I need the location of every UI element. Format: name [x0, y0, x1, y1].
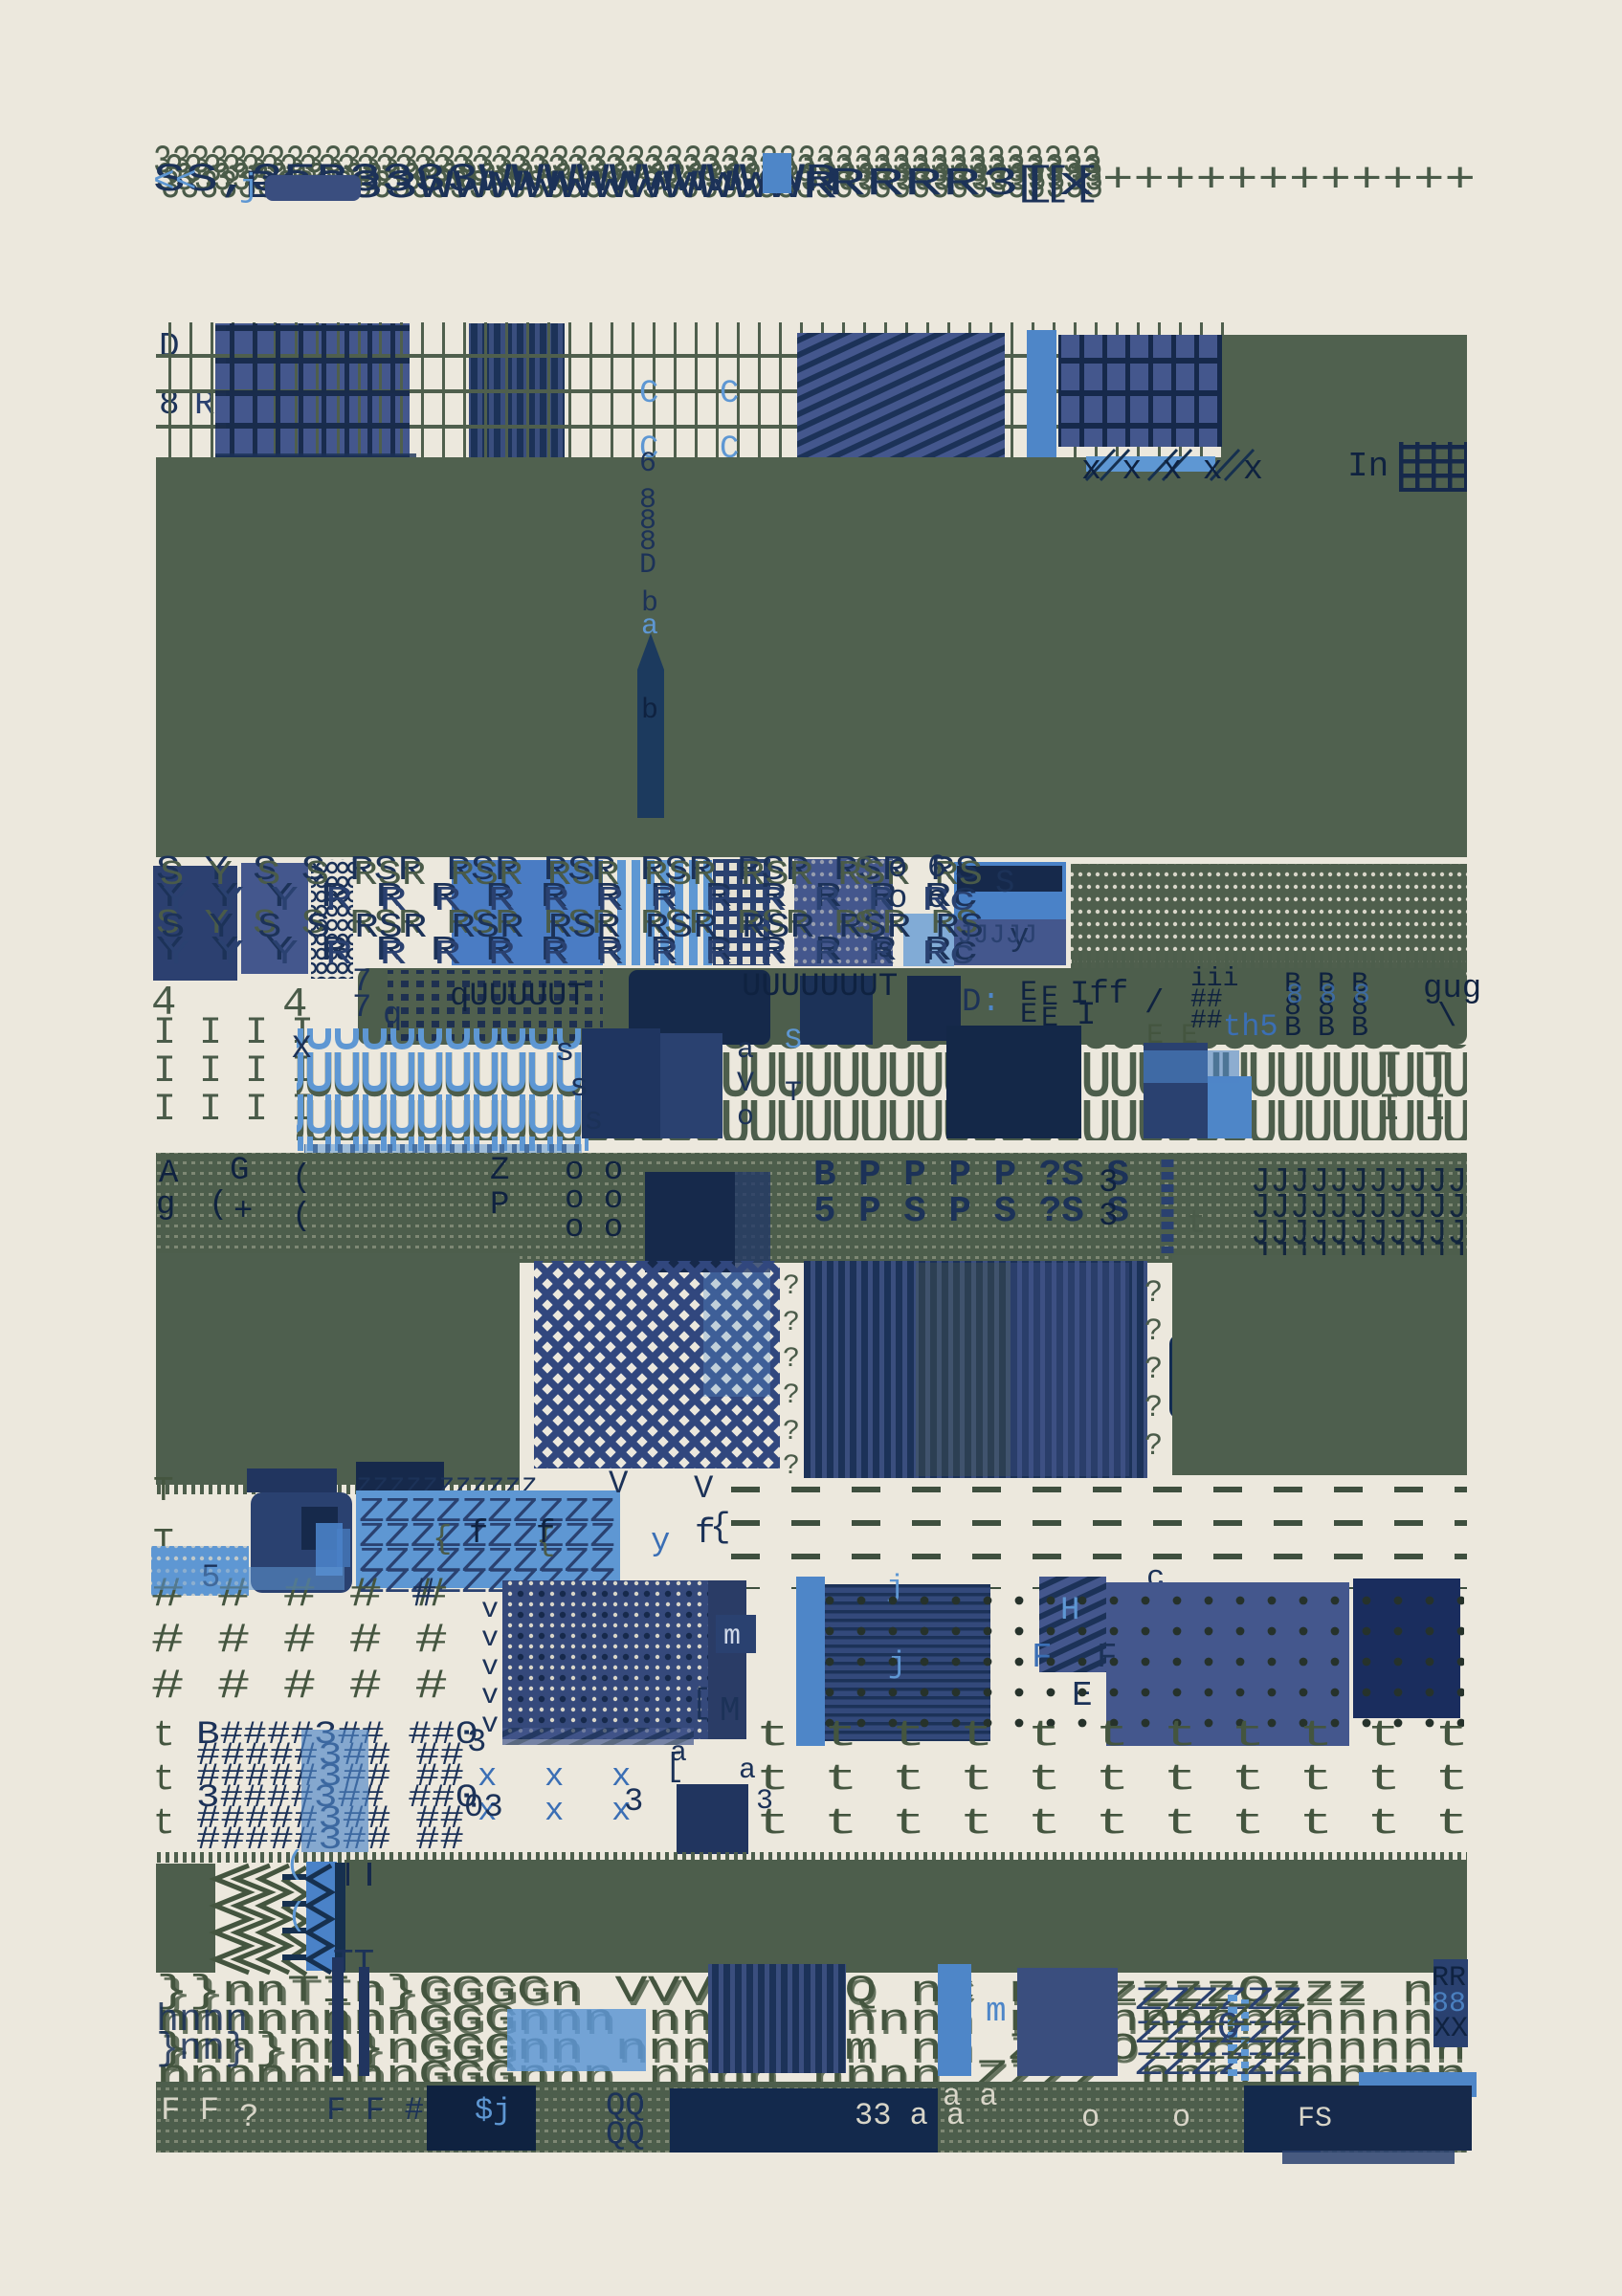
svg-text:y: y	[651, 1524, 670, 1560]
svg-text:I I: I I	[1378, 1089, 1447, 1132]
svg-text:3: 3	[1099, 1199, 1118, 1235]
svg-text:F F: F F	[161, 2093, 219, 2130]
svg-text:}nn}: }nn}	[156, 2028, 248, 2071]
svg-text:g: g	[156, 1187, 175, 1224]
svg-text:B P P P P ?S S: B P P P P ?S S	[813, 1155, 1129, 1196]
svg-text:I I I I: I I I I	[153, 1012, 314, 1055]
svg-text:ZZZZZZ: ZZZZZZ	[1144, 1999, 1307, 2036]
svg-text:th5: th5	[1223, 1009, 1278, 1045]
svg-text:?: ?	[1144, 1314, 1163, 1349]
svg-text:+: +	[233, 1194, 253, 1230]
svg-text:# # # # #: # # # # #	[151, 1663, 448, 1711]
svg-text:QQ: QQ	[606, 2117, 645, 2153]
svg-text:qUUUUUT: qUUUUUT	[450, 979, 587, 1015]
svg-text:?: ?	[1144, 1390, 1163, 1425]
svg-text:?: ?	[1144, 1428, 1163, 1464]
svg-text:5 P S P S ?S S: 5 P S P S ?S S	[813, 1191, 1129, 1232]
svg-text:a: a	[670, 1737, 687, 1770]
svg-text:{: {	[433, 1522, 452, 1558]
svg-text:v: v	[481, 1594, 499, 1626]
svg-text:6: 6	[639, 448, 656, 480]
svg-text:x x x x x: x x x x x	[1081, 450, 1263, 489]
svg-text:C: C	[639, 376, 658, 412]
svg-text:s: s	[555, 1034, 574, 1071]
svg-text:[: [	[691, 1684, 712, 1723]
svg-text:(: (	[292, 1160, 311, 1197]
svg-text:3: 3	[756, 1785, 773, 1818]
svg-text:x: x	[544, 1759, 564, 1796]
svg-text:o: o	[737, 1101, 754, 1134]
svg-text:FS: FS	[1298, 2103, 1332, 2135]
svg-text:j: j	[239, 170, 258, 207]
svg-text:G: G	[230, 1153, 249, 1189]
svg-text:I I I I: I I I I	[153, 1089, 314, 1132]
svg-text:?: ?	[783, 1380, 800, 1412]
svg-text:# # # # #: # # # # #	[151, 1617, 448, 1665]
svg-text:(: (	[292, 1199, 311, 1235]
svg-text:In: In	[1347, 447, 1389, 486]
svg-text:JJJJJ: JJJJJ	[957, 921, 1037, 951]
svg-text:S: S	[785, 1025, 802, 1057]
svg-text:I I I I: I I I I	[153, 1050, 314, 1093]
svg-text:8: 8	[1353, 980, 1370, 1012]
svg-text:/: /	[1144, 986, 1164, 1023]
svg-text:T: T	[785, 1077, 802, 1110]
svg-text:M: M	[720, 1691, 741, 1731]
svg-text:##: ##	[1190, 1006, 1223, 1036]
svg-text:?: ?	[783, 1307, 800, 1339]
svg-text:f: f	[536, 1516, 555, 1553]
svg-text:o: o	[1172, 2100, 1190, 2135]
svg-text:UUUUUUUT: UUUUUUUT	[742, 969, 898, 1005]
svg-text:b: b	[641, 695, 658, 727]
svg-text:t t t t t t t t t t t: t t t t t t t t t t t	[756, 1803, 1469, 1844]
svg-text:T: T	[153, 1471, 174, 1511]
svg-text:?: ?	[783, 1270, 800, 1303]
svg-text:8: 8	[1286, 980, 1303, 1012]
svg-text:Z: Z	[490, 1153, 509, 1189]
svg-text:(: (	[287, 1899, 306, 1935]
svg-text:XX: XX	[1433, 2013, 1468, 2045]
svg-text:o o: o o	[888, 881, 946, 917]
svg-text:?: ?	[1144, 1352, 1163, 1387]
svg-text:C: C	[720, 376, 739, 412]
svg-text:++++++++++++: ++++++++++++	[1102, 157, 1476, 205]
svg-text:#: #	[411, 1571, 436, 1619]
svg-text:P: P	[490, 1187, 509, 1224]
svg-text:(: (	[209, 1187, 228, 1224]
svg-text:a: a	[737, 1034, 754, 1067]
svg-text:a a: a a	[943, 2079, 998, 2114]
svg-text:X: X	[292, 1031, 311, 1068]
svg-text:D: D	[639, 549, 656, 582]
svg-text:t t t t t t t t t t t: t t t t t t t t t t t	[756, 1715, 1469, 1756]
svg-text:V: V	[694, 1471, 714, 1508]
svg-text:03: 03	[464, 1790, 503, 1826]
svg-text:s: s	[569, 1070, 589, 1106]
svg-text:t t t t t t t t t t t: t t t t t t t t t t t	[756, 1759, 1469, 1800]
svg-text:\: \	[1437, 1000, 1456, 1036]
svg-text:3: 3	[1099, 1165, 1118, 1202]
svg-text:F F #: F F #	[326, 2093, 424, 2130]
svg-text:$j: $j	[475, 2093, 511, 2129]
svg-text:t: t	[153, 1715, 175, 1756]
svg-text:a: a	[739, 1755, 756, 1787]
svg-text:?: ?	[239, 2100, 258, 2136]
svg-text:7: 7	[352, 990, 371, 1027]
svg-text:ZZZZZZ: ZZZZZZ	[1144, 2033, 1307, 2069]
svg-text:v: v	[481, 1623, 499, 1655]
svg-text:o o: o o	[565, 1210, 623, 1247]
svg-text:s: s	[584, 1103, 603, 1139]
svg-text:B: B	[1318, 1012, 1335, 1045]
svg-text:v: v	[481, 1651, 499, 1684]
svg-text:V: V	[737, 1068, 754, 1100]
svg-text:?: ?	[783, 1416, 800, 1448]
svg-text:S: S	[855, 907, 874, 943]
svg-text:f: f	[469, 1516, 488, 1553]
svg-text:v: v	[481, 1680, 499, 1712]
svg-text:3: 3	[624, 1784, 643, 1821]
svg-text:<<: <<	[153, 162, 197, 203]
svg-text:?: ?	[783, 1343, 800, 1376]
svg-text:t: t	[1187, 1206, 1206, 1243]
svg-text:?: ?	[1144, 1275, 1163, 1311]
svg-text:m: m	[986, 1992, 1007, 2031]
svg-text:[[[: [[[	[1012, 161, 1100, 207]
svg-text:S: S	[995, 866, 1014, 902]
svg-text:B: B	[1351, 1012, 1368, 1045]
svg-text:x: x	[544, 1794, 564, 1830]
svg-text:8: 8	[1320, 980, 1337, 1012]
svg-text:(: (	[285, 1847, 304, 1884]
svg-text:t: t	[153, 1803, 175, 1844]
svg-text:3: 3	[467, 1725, 486, 1761]
svg-text:D:: D:	[962, 984, 1001, 1021]
svg-text:t: t	[153, 1759, 175, 1800]
svg-text:o: o	[1081, 2100, 1100, 2135]
svg-text:B: B	[1284, 1012, 1301, 1045]
svg-text:V: V	[609, 1467, 629, 1503]
svg-text:S: S	[855, 852, 874, 889]
svg-text:T T: T T	[1378, 1047, 1447, 1090]
svg-text:m: m	[723, 1621, 741, 1653]
svg-text:s: s	[877, 934, 894, 966]
